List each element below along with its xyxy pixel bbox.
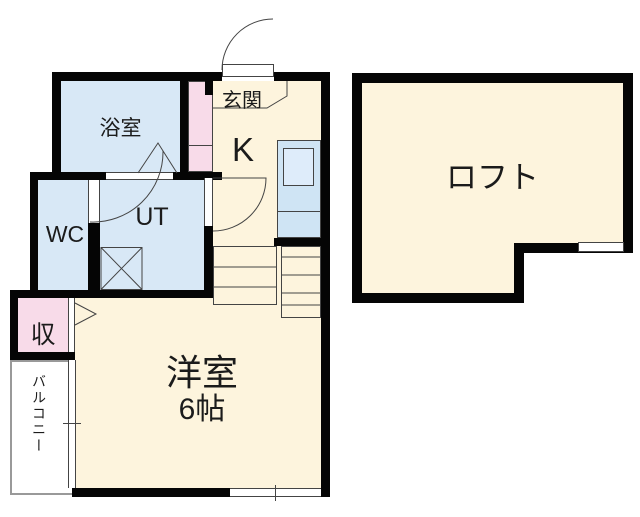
wall-kitchen-left (204, 226, 213, 298)
closet-divider-line (189, 145, 212, 146)
bathroom-label: 浴室 (61, 112, 180, 142)
kitchen-sink (283, 148, 314, 186)
wall-under-counter (274, 238, 321, 246)
balcony-window (68, 360, 76, 488)
wall-storage-bottom (10, 352, 75, 360)
wall-bathroom-bottom-right (173, 172, 222, 180)
wall-storage-left (10, 290, 18, 360)
balcony-label: バルコニー (29, 374, 49, 454)
wall-bathroom-right (180, 72, 188, 180)
western-room-label: 洋室 (90, 353, 314, 393)
wall-top-left (52, 72, 222, 81)
wall-bathroom-bottom-left (30, 172, 106, 180)
kitchen-label: K (212, 131, 274, 169)
counter-divider-line (278, 211, 320, 212)
wall-wc-left (30, 172, 38, 298)
western-room-size: 6帖 (90, 393, 314, 427)
storage-label: 収 (18, 315, 68, 351)
kitchen-counter (277, 140, 321, 238)
storage-door-opening (68, 298, 75, 352)
wall-right (321, 72, 330, 497)
western-room-window (230, 488, 321, 497)
loft-window (578, 242, 624, 252)
wall-left-upper (52, 72, 61, 180)
utility-room (100, 180, 204, 290)
western-room-label-group: 洋室 6帖 (90, 353, 314, 427)
entrance-door-arc (222, 19, 273, 70)
entrance-label: 玄関 (211, 84, 273, 113)
bathroom-door-opening (106, 172, 173, 180)
floor-plan: 浴室 玄関 K WC UT 収 バルコニー 洋室 6帖 ロフト (0, 0, 640, 517)
wall-bottom (72, 488, 230, 497)
kitchen-door-opening (204, 178, 213, 226)
loft-label: ロフト (362, 152, 623, 197)
wc-label: WC (38, 221, 92, 248)
wc-door-opening (88, 180, 100, 223)
entrance-door-leaf (222, 64, 274, 77)
wall-middle-horizontal (10, 290, 213, 298)
utility-label: UT (100, 203, 204, 232)
